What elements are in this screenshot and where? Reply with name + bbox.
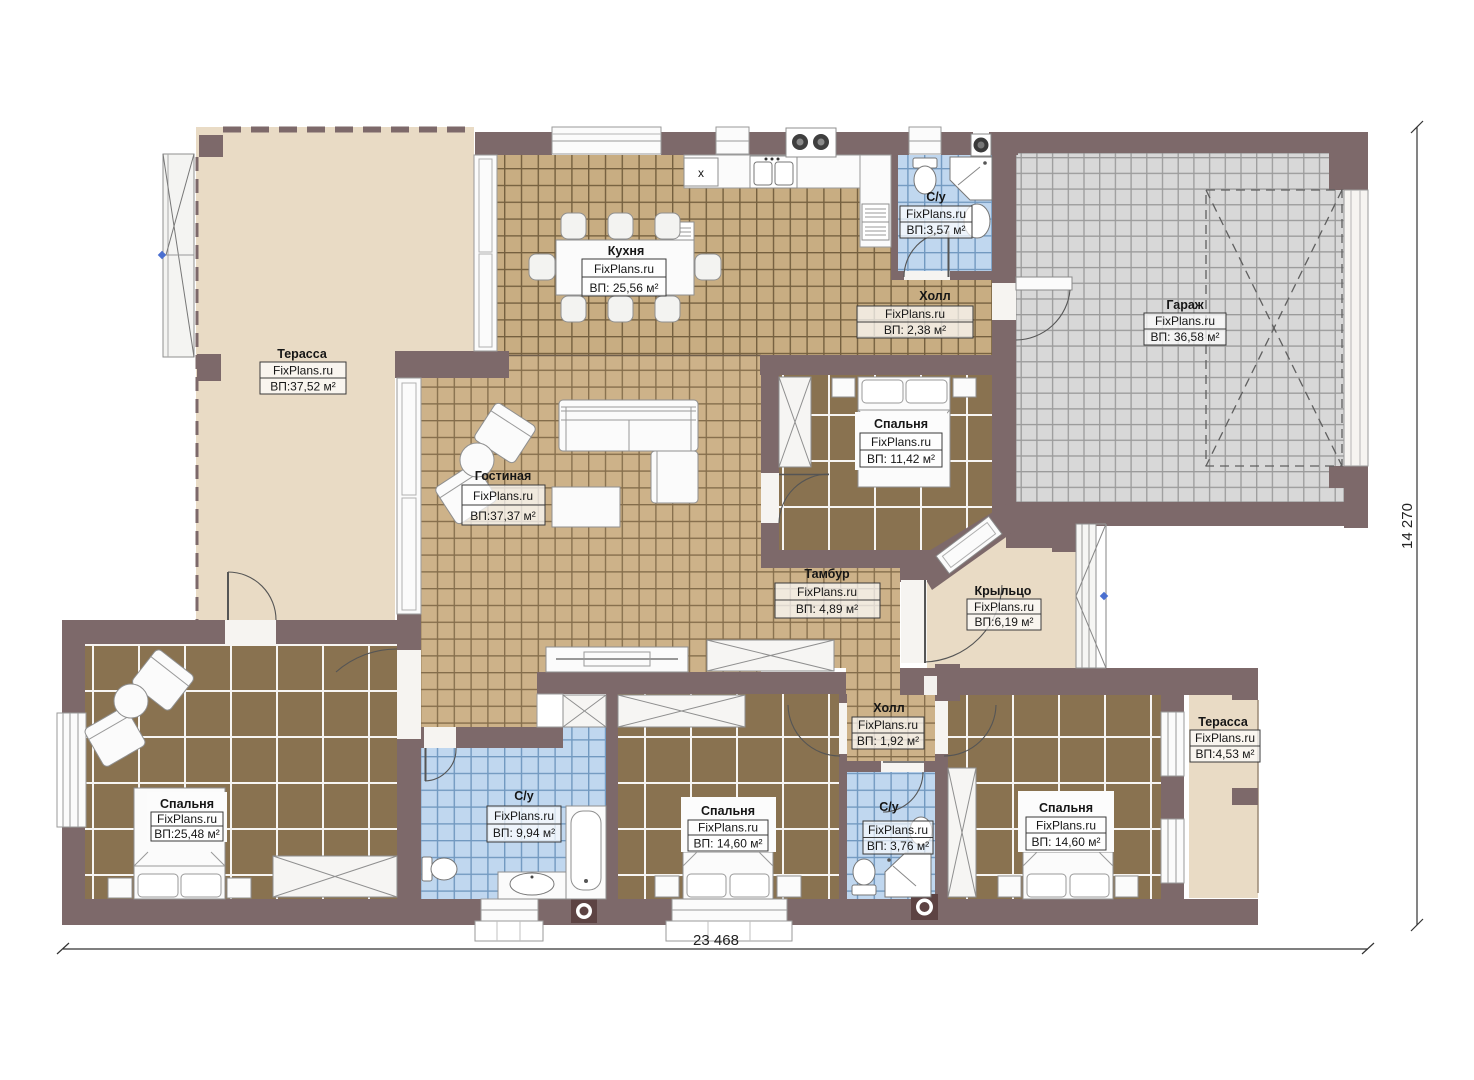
svg-text:ВП: 4,89 м²: ВП: 4,89 м² (796, 602, 858, 616)
svg-text:Кухня: Кухня (608, 244, 645, 258)
svg-text:FixPlans.ru: FixPlans.ru (871, 435, 931, 449)
svg-text:Терасса: Терасса (277, 347, 328, 361)
svg-text:x: x (698, 166, 704, 180)
svg-text:ВП:6,19 м²: ВП:6,19 м² (975, 615, 1034, 629)
svg-text:Спальня: Спальня (1039, 801, 1093, 815)
svg-text:Спальня: Спальня (874, 417, 928, 431)
svg-text:Холл: Холл (873, 701, 904, 715)
svg-text:ВП: 14,60 м²: ВП: 14,60 м² (694, 837, 763, 851)
svg-text:ВП:25,48 м²: ВП:25,48 м² (154, 827, 220, 841)
svg-text:С/у: С/у (514, 789, 534, 803)
svg-text:Спальня: Спальня (701, 804, 755, 818)
svg-text:ВП:37,37 м²: ВП:37,37 м² (470, 509, 536, 523)
svg-text:ВП: 2,38 м²: ВП: 2,38 м² (884, 323, 946, 337)
svg-text:23 468: 23 468 (693, 932, 739, 949)
svg-text:Тамбур: Тамбур (804, 567, 850, 581)
svg-text:ВП: 36,58 м²: ВП: 36,58 м² (1151, 330, 1220, 344)
svg-text:14 270: 14 270 (1399, 503, 1416, 549)
svg-text:FixPlans.ru: FixPlans.ru (858, 718, 918, 732)
svg-text:FixPlans.ru: FixPlans.ru (473, 489, 533, 503)
svg-text:FixPlans.ru: FixPlans.ru (974, 600, 1034, 614)
svg-text:FixPlans.ru: FixPlans.ru (273, 364, 333, 378)
svg-text:ВП:3,57 м²: ВП:3,57 м² (907, 223, 966, 237)
svg-text:ВП: 11,42 м²: ВП: 11,42 м² (867, 452, 935, 466)
svg-text:ВП:4,53 м²: ВП:4,53 м² (1196, 747, 1255, 761)
svg-text:FixPlans.ru: FixPlans.ru (1155, 314, 1215, 328)
svg-text:FixPlans.ru: FixPlans.ru (1036, 819, 1096, 833)
svg-text:С/у: С/у (879, 800, 899, 814)
svg-text:ВП: 9,94 м²: ВП: 9,94 м² (493, 826, 555, 840)
svg-text:ВП: 1,92 м²: ВП: 1,92 м² (857, 734, 919, 748)
svg-text:ВП: 14,60 м²: ВП: 14,60 м² (1032, 835, 1101, 849)
svg-text:FixPlans.ru: FixPlans.ru (868, 823, 928, 837)
svg-text:Гараж: Гараж (1166, 298, 1203, 312)
svg-text:Крыльцо: Крыльцо (975, 584, 1032, 598)
svg-text:ВП:37,52 м²: ВП:37,52 м² (270, 380, 336, 394)
svg-text:FixPlans.ru: FixPlans.ru (1195, 731, 1255, 745)
svg-text:FixPlans.ru: FixPlans.ru (594, 262, 654, 276)
svg-text:Гостиная: Гостиная (475, 469, 532, 483)
svg-text:FixPlans.ru: FixPlans.ru (494, 809, 554, 823)
svg-text:FixPlans.ru: FixPlans.ru (797, 585, 857, 599)
svg-text:ВП: 3,76 м²: ВП: 3,76 м² (867, 839, 929, 853)
svg-text:FixPlans.ru: FixPlans.ru (906, 207, 966, 221)
svg-text:ВП: 25,56 м²: ВП: 25,56 м² (590, 281, 659, 295)
svg-text:Терасса: Терасса (1198, 715, 1249, 729)
svg-text:Спальня: Спальня (160, 797, 214, 811)
svg-text:FixPlans.ru: FixPlans.ru (885, 307, 945, 321)
svg-text:С/у: С/у (926, 190, 946, 204)
svg-text:Холл: Холл (919, 289, 950, 303)
svg-text:FixPlans.ru: FixPlans.ru (698, 821, 758, 835)
svg-text:FixPlans.ru: FixPlans.ru (157, 812, 217, 826)
